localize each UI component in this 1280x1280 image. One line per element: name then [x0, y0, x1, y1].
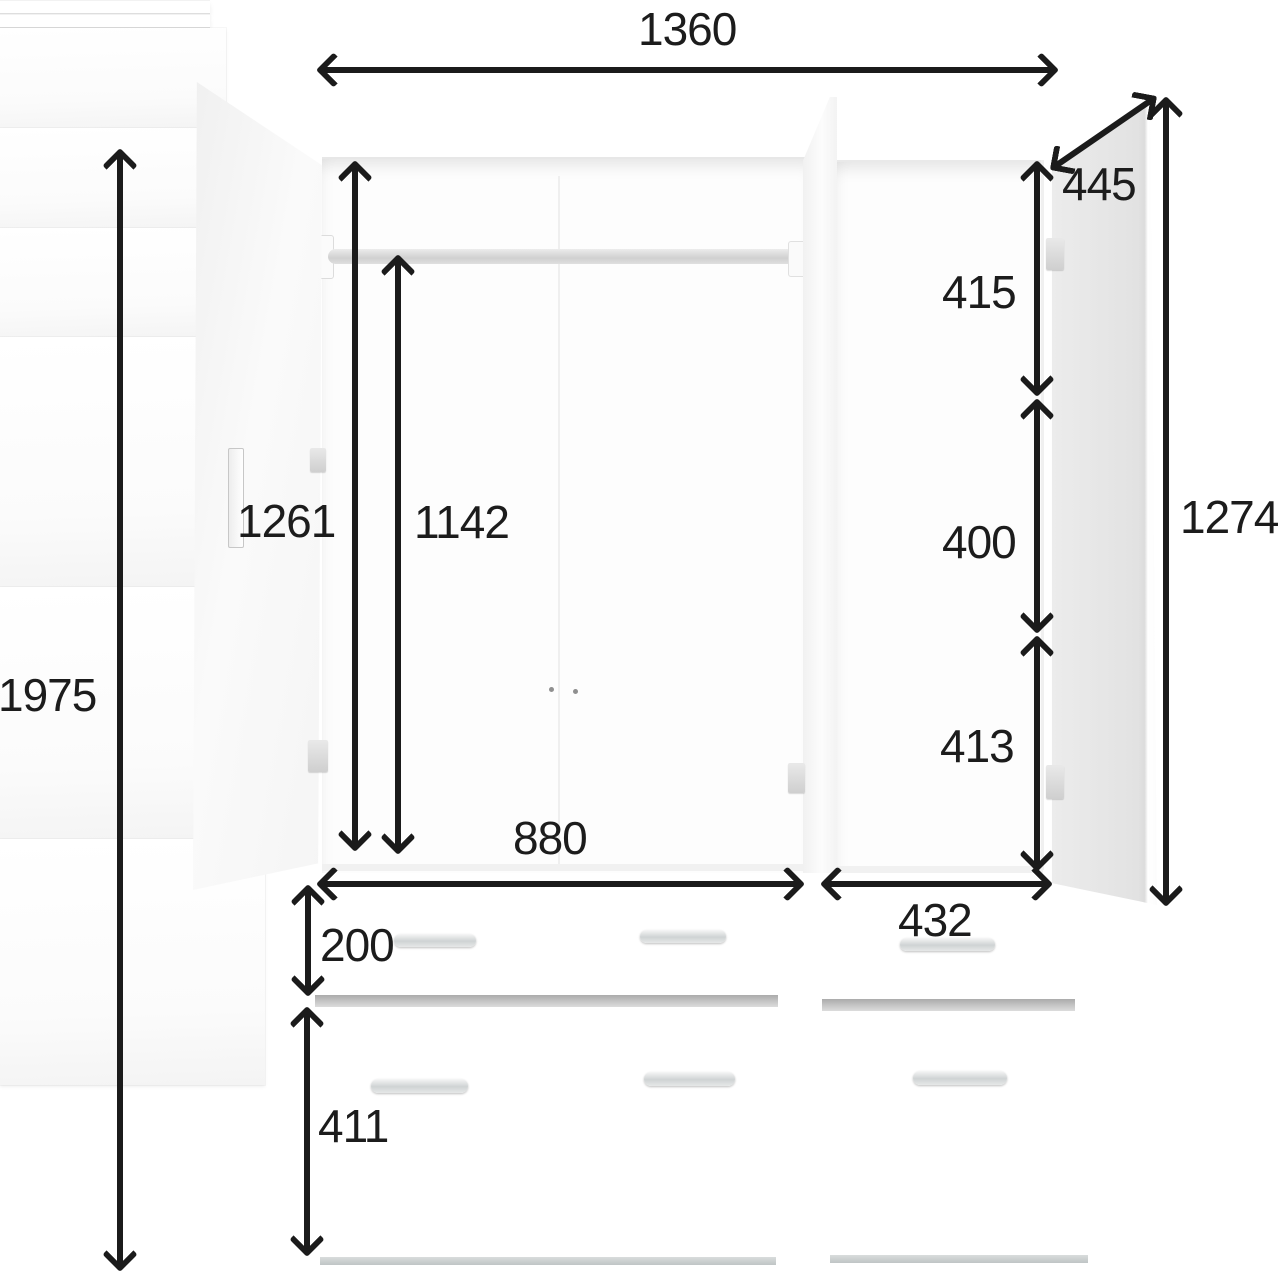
right-compartment-wall-line	[1041, 160, 1044, 870]
dim-label-rail-height: 1142	[414, 499, 509, 545]
lower-door-middle-handle	[644, 1072, 735, 1086]
drawer-gap-shadow-left	[315, 995, 778, 1007]
dim-label-width-main: 880	[513, 815, 587, 861]
dim-arrow-right-door-height	[1163, 98, 1169, 905]
lower-door-left-handle	[371, 1079, 468, 1093]
left-door-hinge-top	[310, 448, 326, 472]
dim-arrow-compartment-bottom	[1034, 637, 1040, 870]
drawer-gap-shadow-right	[822, 999, 1075, 1011]
wardrobe-dimension-diagram: 1360 1975 1261 1142 445 415 400 413 1274…	[0, 0, 1280, 1280]
back-panel-seam	[558, 176, 560, 864]
dim-arrow-interior-height	[352, 162, 358, 850]
dim-arrow-height-overall	[117, 150, 123, 1270]
dim-label-interior-height: 1261	[237, 498, 335, 544]
dim-arrow-width-right	[822, 881, 1051, 887]
right-compartment-floor	[837, 866, 1043, 873]
lower-door-left	[0, 337, 221, 587]
left-door-panel	[193, 82, 322, 890]
dim-label-right-door-height: 1274	[1180, 494, 1278, 540]
dim-label-door-depth: 445	[1062, 161, 1136, 207]
dim-label-compartment-top: 415	[942, 269, 1016, 315]
dim-arrow-compartment-middle	[1034, 400, 1040, 632]
dim-arrow-width-overall	[318, 67, 1057, 73]
middle-partition	[803, 97, 837, 873]
dim-label-width-overall: 1360	[638, 6, 736, 52]
dim-arrow-width-main	[318, 881, 803, 887]
dim-label-width-right: 432	[898, 897, 972, 943]
shelf-lower	[0, 14, 210, 28]
dim-arrow-rail-height	[395, 256, 401, 853]
dim-arrow-compartment-top	[1034, 162, 1040, 395]
left-door-hinge-bottom	[308, 740, 328, 772]
plinth-right	[830, 1255, 1088, 1263]
lower-door-right-handle	[913, 1071, 1007, 1085]
shelf-upper	[0, 0, 210, 14]
dim-label-compartment-middle: 400	[942, 519, 1016, 565]
dowel-hole	[549, 687, 554, 692]
drawer-middle-handle	[640, 930, 726, 943]
main-compartment-floor	[322, 864, 805, 871]
dim-arrow-drawer-height	[305, 886, 311, 995]
drawer-front-left	[0, 28, 226, 128]
partition-hinge	[788, 763, 805, 793]
right-door-hinge-top	[1046, 238, 1064, 270]
right-door-panel	[1050, 97, 1160, 905]
drawer-left-handle	[394, 934, 476, 947]
right-door-hinge-bottom	[1046, 765, 1064, 799]
dim-arrow-lower-door-height	[304, 1008, 310, 1255]
dim-label-drawer-height: 200	[320, 922, 394, 968]
dim-label-compartment-bottom: 413	[940, 723, 1014, 769]
dowel-hole	[573, 689, 578, 694]
plinth-left	[320, 1257, 776, 1265]
dim-label-height-overall: 1975	[0, 672, 96, 718]
dim-label-lower-door-height: 411	[318, 1103, 388, 1149]
